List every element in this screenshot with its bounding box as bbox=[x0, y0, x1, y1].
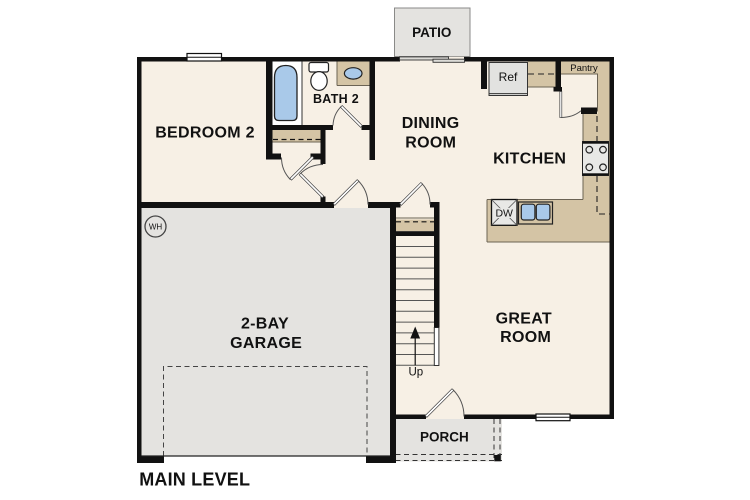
svg-text:MAIN LEVEL: MAIN LEVEL bbox=[139, 469, 250, 489]
svg-text:Ref: Ref bbox=[499, 70, 518, 84]
svg-text:DW: DW bbox=[495, 208, 513, 220]
svg-text:GARAGE: GARAGE bbox=[230, 335, 302, 352]
svg-text:2-BAY: 2-BAY bbox=[241, 315, 289, 332]
svg-text:GREAT: GREAT bbox=[496, 311, 552, 328]
svg-text:ROOM: ROOM bbox=[500, 329, 551, 346]
svg-text:ROOM: ROOM bbox=[405, 135, 456, 152]
svg-text:DINING: DINING bbox=[402, 115, 460, 132]
svg-text:PORCH: PORCH bbox=[420, 429, 469, 444]
svg-text:Up: Up bbox=[408, 367, 423, 379]
svg-text:KITCHEN: KITCHEN bbox=[493, 151, 566, 168]
svg-text:Pantry: Pantry bbox=[570, 63, 598, 74]
svg-text:PATIO: PATIO bbox=[412, 25, 451, 40]
svg-text:BEDROOM 2: BEDROOM 2 bbox=[155, 124, 255, 141]
svg-text:WH: WH bbox=[149, 223, 163, 232]
svg-text:BATH 2: BATH 2 bbox=[313, 92, 359, 106]
